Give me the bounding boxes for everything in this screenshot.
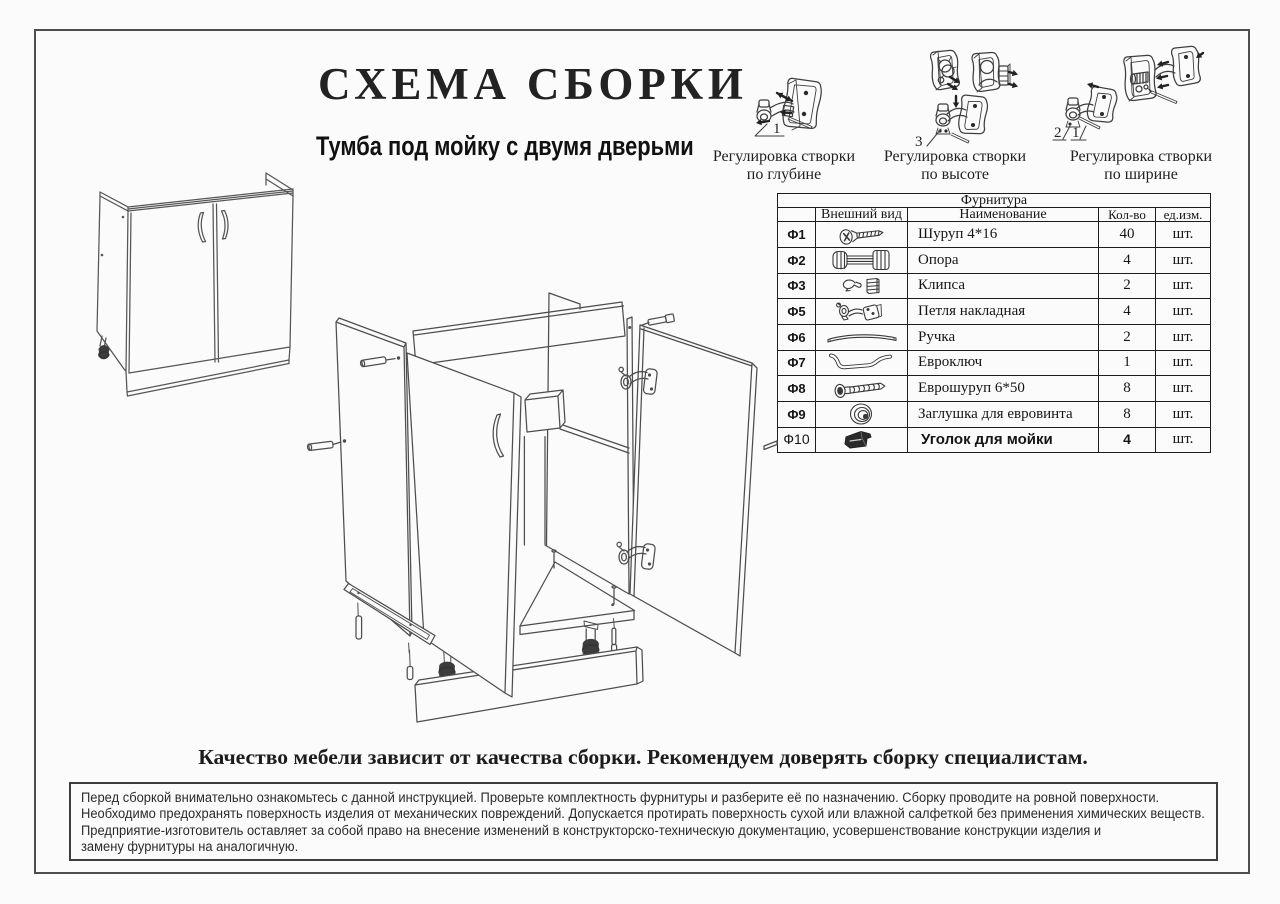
svg-text:2: 2 bbox=[1054, 125, 1062, 141]
svg-text:1: 1 bbox=[773, 121, 781, 137]
svg-text:1: 1 bbox=[1072, 125, 1080, 141]
svg-text:3: 3 bbox=[915, 134, 923, 150]
